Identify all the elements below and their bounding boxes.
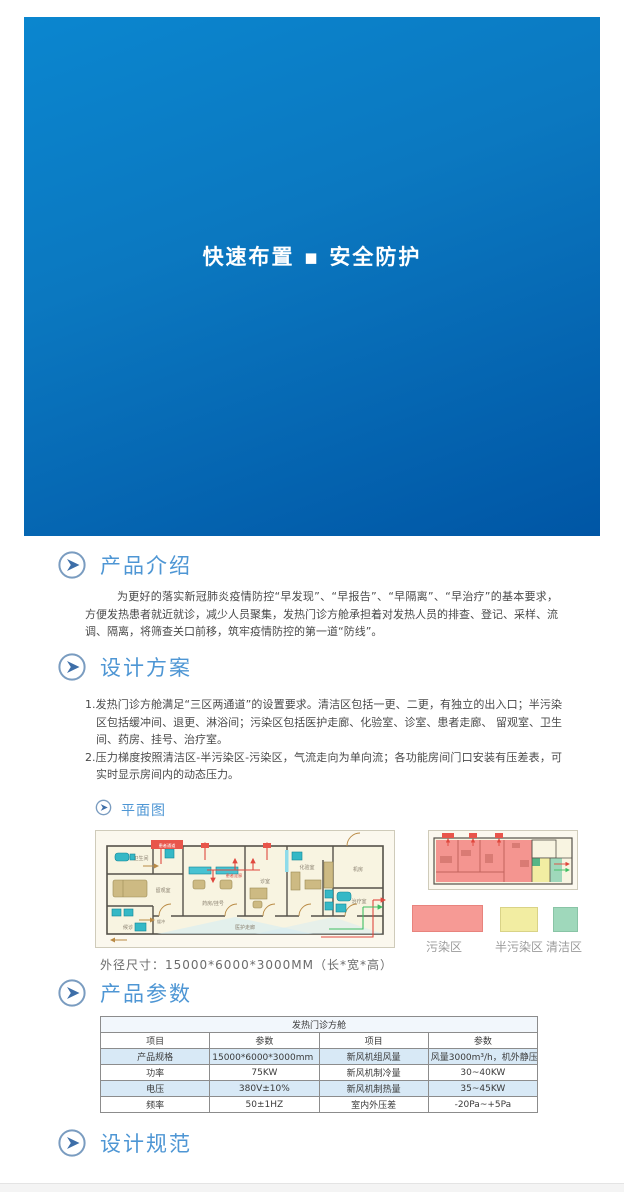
table-title-row: 发热门诊方舱: [101, 1017, 538, 1033]
plan-label-waiting: 候诊: [123, 924, 133, 931]
table-row: 产品规格 15000*6000*3000mm（长*宽*高） 新风机组风量 风量3…: [101, 1049, 538, 1065]
intro-paragraph: 为更好的落实新冠肺炎疫情防控“早发现”、“早报告”、“早隔离”、“早治疗”的基本…: [85, 588, 558, 641]
section-title-params: 产品参数: [100, 978, 192, 1008]
table-cell: 15000*6000*3000mm（长*宽*高）: [210, 1049, 319, 1065]
section-title-spec: 设计规范: [100, 1128, 192, 1158]
table-cell: -20Pa~+5Pa: [428, 1097, 537, 1113]
product-detail-page: 快速布置 ▪ 安全防护 产品介绍 为更好的落实新冠肺炎疫情防控“早发现”、“早报…: [0, 0, 624, 1192]
legend-label-contaminated: 污染区: [426, 938, 462, 955]
legend-swatch-clean: [553, 907, 578, 932]
circle-arrow-icon: [57, 1128, 87, 1158]
legend-label-semi-contaminated: 半污染区: [495, 938, 543, 955]
circle-arrow-icon: [57, 550, 87, 580]
legend-swatch-semi-contaminated: [500, 907, 538, 932]
plan-label-patient-corridor: 患者走廊: [226, 872, 243, 879]
section-title-intro: 产品介绍: [100, 550, 192, 580]
col-header: 参数: [210, 1033, 319, 1049]
section-header-spec: 设计规范: [0, 1128, 192, 1158]
col-header: 项目: [101, 1033, 210, 1049]
plan-label-ward: 留观室: [155, 887, 170, 894]
plan-label-lab: 化验室: [299, 864, 314, 871]
table-cell: 380V±10%: [210, 1081, 319, 1097]
section-header-params: 产品参数: [0, 978, 192, 1008]
design-item: 2.压力梯度按照清洁区-半污染区-污染区，气流走向为单向流；各功能房间门口安装有…: [85, 749, 562, 784]
table-header-row: 项目 参数 项目 参数: [101, 1033, 538, 1049]
table-cell: 电压: [101, 1081, 210, 1097]
plan-label-buffer: 缓冲: [157, 918, 165, 924]
section-header-intro: 产品介绍: [0, 550, 192, 580]
plan-label-equipment: 机房: [353, 866, 363, 873]
section-header-design: 设计方案: [0, 652, 192, 682]
floorplan-zones-image: [428, 830, 578, 890]
table-cell: 30~40KW: [428, 1065, 537, 1081]
plan-label-toilet: 卫生间: [133, 855, 148, 862]
table-title: 发热门诊方舱: [101, 1017, 538, 1033]
design-list: 1.发热门诊方舱满足“三区两通道”的设置要求。清洁区包括一更、二更，有独立的出入…: [85, 696, 562, 784]
table-cell: 新风机制冷量: [319, 1065, 428, 1081]
table-cell: 35~45KW: [428, 1081, 537, 1097]
circle-arrow-icon: [95, 799, 112, 820]
floorplan-detailed-image: 患者通道 患者走廊 卫生间 留观室 候诊 缓冲 药房/挂号 诊室 化验室 治疗室…: [95, 830, 395, 948]
table-cell: 室内外压差: [319, 1097, 428, 1113]
table-cell: 功率: [101, 1065, 210, 1081]
banner-title: 快速布置 ▪ 安全防护: [24, 241, 600, 271]
plan-label-treatment: 治疗室: [351, 898, 366, 905]
col-header: 项目: [319, 1033, 428, 1049]
design-item: 1.发热门诊方舱满足“三区两通道”的设置要求。清洁区包括一更、二更，有独立的出入…: [85, 696, 562, 749]
col-header: 参数: [428, 1033, 537, 1049]
plan-label-patient-channel: 患者通道: [159, 842, 177, 849]
plan-label-clinic: 诊室: [260, 878, 270, 885]
hero-banner: 快速布置 ▪ 安全防护: [24, 17, 600, 536]
table-cell: 50±1HZ: [210, 1097, 319, 1113]
parameters-table: 发热门诊方舱 项目 参数 项目 参数 产品规格 15000*6000*3000m…: [100, 1016, 538, 1113]
legend-swatch-contaminated: [412, 905, 483, 932]
table-row: 频率 50±1HZ 室内外压差 -20Pa~+5Pa: [101, 1097, 538, 1113]
table-row: 电压 380V±10% 新风机制热量 35~45KW: [101, 1081, 538, 1097]
table-cell: 产品规格: [101, 1049, 210, 1065]
table-cell: 新风机组风量: [319, 1049, 428, 1065]
zone-plan-column: 污染区 半污染区 清洁区: [412, 830, 587, 955]
plan-label-pharmacy: 药房/挂号: [202, 900, 224, 907]
dimension-note: 外径尺寸：15000*6000*3000MM（长*宽*高）: [100, 956, 393, 973]
table-row: 功率 75KW 新风机制冷量 30~40KW: [101, 1065, 538, 1081]
table-cell: 风量3000m³/h，机外静压350Pa: [428, 1049, 537, 1065]
circle-arrow-icon: [57, 978, 87, 1008]
subsection-title-floorplan: 平面图: [121, 800, 166, 820]
plan-label-corridor: 医护走廊: [235, 924, 255, 931]
section-title-design: 设计方案: [100, 652, 192, 682]
legend-label-clean: 清洁区: [546, 938, 582, 955]
table-cell: 75KW: [210, 1065, 319, 1081]
table-cell: 频率: [101, 1097, 210, 1113]
subsection-header-floorplan: 平面图: [95, 799, 166, 820]
table-cell: 新风机制热量: [319, 1081, 428, 1097]
footer-divider-bar: [0, 1183, 624, 1192]
floorplan-images: 患者通道 患者走廊 卫生间 留观室 候诊 缓冲 药房/挂号 诊室 化验室 治疗室…: [95, 830, 587, 955]
circle-arrow-icon: [57, 652, 87, 682]
zone-legend: 污染区 半污染区 清洁区: [412, 905, 587, 955]
